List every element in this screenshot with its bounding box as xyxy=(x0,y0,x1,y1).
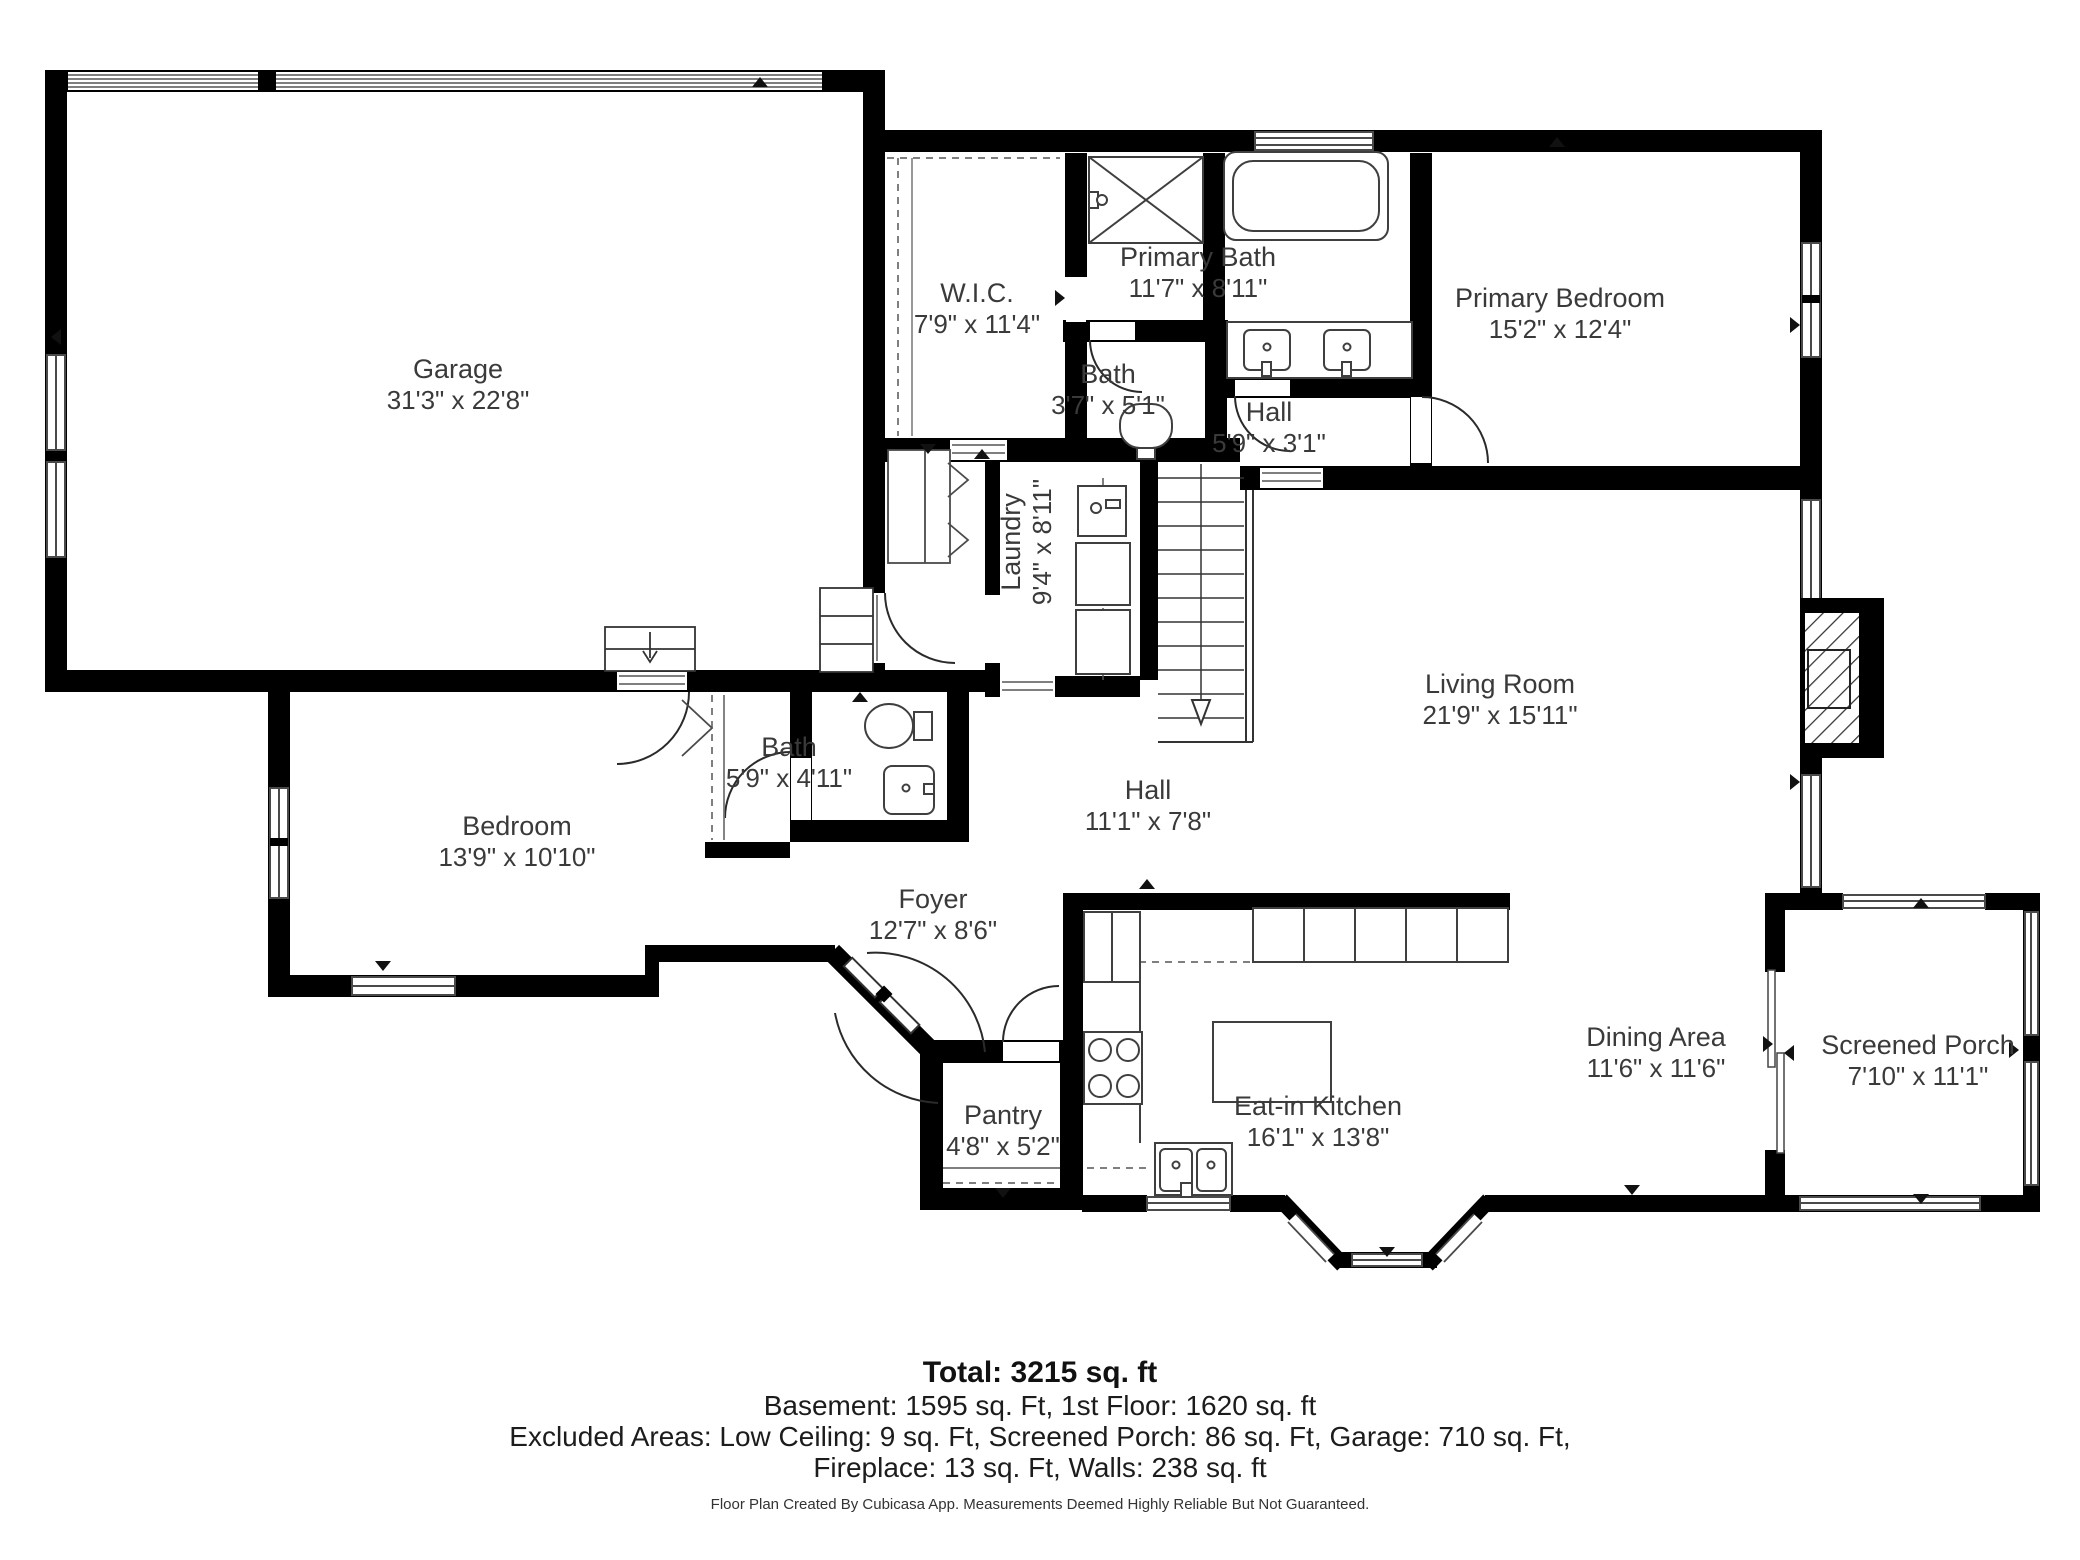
room-label-hall-bath: Bath 5'9" x 4'11" xyxy=(726,731,852,793)
room-label-living-room: Living Room 21'9" x 15'11" xyxy=(1422,668,1577,730)
room-name: Hall xyxy=(1085,774,1211,806)
garage-steps xyxy=(605,588,873,672)
room-name: Laundry xyxy=(995,479,1027,605)
room-label-foyer: Foyer 12'7" x 8'6" xyxy=(869,883,997,945)
room-name: Bedroom xyxy=(438,810,595,842)
room-name: Primary Bath xyxy=(1120,241,1276,273)
hall-bath-fixtures xyxy=(865,704,934,814)
room-dims: 15'2" x 12'4" xyxy=(1455,314,1665,344)
room-label-hall-small: Hall 5'9" x 3'1" xyxy=(1212,396,1326,458)
room-label-dining: Dining Area 11'6" x 11'6" xyxy=(1586,1021,1726,1083)
room-name: Dining Area xyxy=(1586,1021,1726,1053)
room-label-bath-small: Bath 3'7" x 5'1" xyxy=(1051,358,1165,420)
total-area: Total: 3215 sq. ft xyxy=(0,1356,2080,1390)
threshold-lines xyxy=(619,445,1321,690)
room-name: Bath xyxy=(1051,358,1165,390)
room-label-laundry: Laundry 9'4" x 8'11" xyxy=(995,479,1057,605)
room-dims: 7'10" x 11'1" xyxy=(1821,1061,2015,1091)
room-name: Foyer xyxy=(869,883,997,915)
room-name: Garage xyxy=(387,353,530,385)
room-label-primary-bath: Primary Bath 11'7" x 8'11" xyxy=(1120,241,1276,303)
disclaimer: Floor Plan Created By Cubicasa App. Meas… xyxy=(0,1496,2080,1513)
entry-door-leaves xyxy=(844,958,920,1034)
floors-area: Basement: 1595 sq. Ft, 1st Floor: 1620 s… xyxy=(0,1390,2080,1421)
room-dims: 21'9" x 15'11" xyxy=(1422,700,1577,730)
fireplace xyxy=(1800,598,1884,758)
sliding-door xyxy=(1768,970,1784,1153)
room-dims: 7'9" x 11'4" xyxy=(914,309,1040,339)
room-dims: 3'7" x 5'1" xyxy=(1051,390,1165,420)
room-label-bedroom: Bedroom 13'9" x 10'10" xyxy=(438,810,595,872)
room-dims: 5'9" x 4'11" xyxy=(726,763,852,793)
room-label-kitchen: Eat-in Kitchen 16'1" x 13'8" xyxy=(1234,1090,1402,1152)
kitchen-fixtures xyxy=(1084,908,1508,1197)
room-name: Primary Bedroom xyxy=(1455,282,1665,314)
room-label-hall-main: Hall 11'1" x 7'8" xyxy=(1085,774,1211,836)
excluded-areas-2: Fireplace: 13 sq. Ft, Walls: 238 sq. ft xyxy=(0,1452,2080,1483)
room-label-garage: Garage 31'3" x 22'8" xyxy=(387,353,530,415)
room-dims: 16'1" x 13'8" xyxy=(1234,1122,1402,1152)
room-label-wic: W.I.C. 7'9" x 11'4" xyxy=(914,277,1040,339)
room-dims: 31'3" x 22'8" xyxy=(387,385,530,415)
floor-plan-page: Garage 31'3" x 22'8" W.I.C. 7'9" x 11'4"… xyxy=(0,0,2080,1560)
room-dims: 11'6" x 11'6" xyxy=(1586,1053,1726,1083)
room-name: Bath xyxy=(726,731,852,763)
room-dims: 11'1" x 7'8" xyxy=(1085,806,1211,836)
windows xyxy=(47,132,2038,1266)
room-dims: 4'8" x 5'2" xyxy=(946,1131,1060,1161)
room-name: Hall xyxy=(1212,396,1326,428)
exterior-and-interior-walls xyxy=(45,70,2040,1212)
garage-door-panels xyxy=(68,72,822,90)
laundry-fixtures xyxy=(1076,486,1130,674)
room-label-porch: Screened Porch 7'10" x 11'1" xyxy=(1821,1029,2015,1091)
stairs-down-arrow xyxy=(1192,700,1210,724)
floor-plan-canvas xyxy=(0,0,2080,1560)
room-dims: 5'9" x 3'1" xyxy=(1212,428,1326,458)
room-label-primary-bedroom: Primary Bedroom 15'2" x 12'4" xyxy=(1455,282,1665,344)
room-label-pantry: Pantry 4'8" x 5'2" xyxy=(946,1099,1060,1161)
room-name: Living Room xyxy=(1422,668,1577,700)
room-name: Screened Porch xyxy=(1821,1029,2015,1061)
room-name: Pantry xyxy=(946,1099,1060,1131)
excluded-areas: Excluded Areas: Low Ceiling: 9 sq. Ft, S… xyxy=(0,1421,2080,1452)
room-dims: 12'7" x 8'6" xyxy=(869,915,997,945)
room-dims: 9'4" x 8'11" xyxy=(1027,479,1057,605)
room-dims: 13'9" x 10'10" xyxy=(438,842,595,872)
room-name: Eat-in Kitchen xyxy=(1234,1090,1402,1122)
summary-footer: Total: 3215 sq. ft Basement: 1595 sq. Ft… xyxy=(0,1356,2080,1513)
steps-direction-arrows xyxy=(643,619,1127,662)
room-dims: 11'7" x 8'11" xyxy=(1120,273,1276,303)
room-name: W.I.C. xyxy=(914,277,1040,309)
